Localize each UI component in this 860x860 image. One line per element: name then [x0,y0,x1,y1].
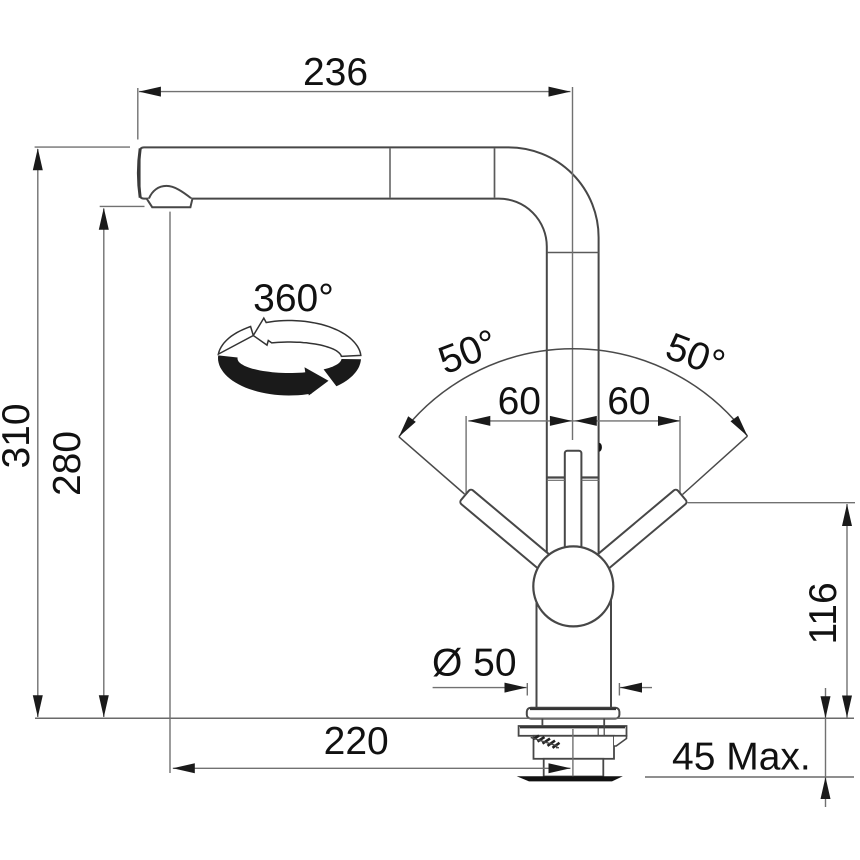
svg-text:60: 60 [498,380,541,423]
svg-text:220: 220 [324,720,389,763]
svg-text:236: 236 [303,51,368,94]
svg-text:60: 60 [607,380,650,423]
svg-text:280: 280 [46,431,89,496]
svg-text:Ø 50: Ø 50 [432,642,517,685]
svg-text:45 Max.: 45 Max. [672,736,811,779]
svg-text:116: 116 [802,582,845,644]
svg-text:310: 310 [0,403,38,468]
svg-text:360°: 360° [253,277,334,320]
